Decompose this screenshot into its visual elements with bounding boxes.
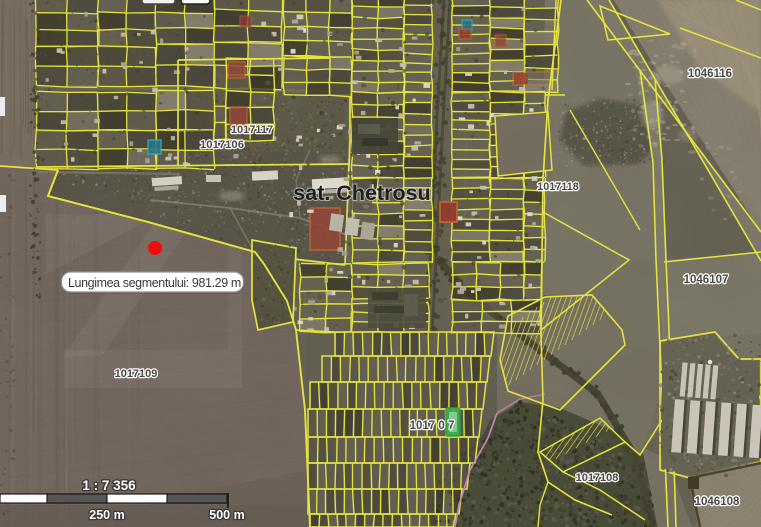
- svg-text:Lungimea segmentului: 981.29 m: Lungimea segmentului: 981.29 m: [68, 276, 241, 290]
- svg-text:1017118: 1017118: [537, 181, 578, 193]
- svg-text:1017108: 1017108: [576, 472, 619, 484]
- svg-text:1 : 7 356: 1 : 7 356: [82, 478, 136, 493]
- svg-text:1046107: 1046107: [684, 274, 729, 286]
- svg-text:500 m: 500 m: [209, 508, 244, 522]
- svg-text:1017109: 1017109: [115, 368, 158, 380]
- svg-text:250 m: 250 m: [89, 508, 124, 522]
- svg-text:1046116: 1046116: [688, 68, 732, 80]
- svg-text:1017117: 1017117: [231, 124, 273, 136]
- svg-text:1017106: 1017106: [200, 139, 244, 151]
- svg-text:1046108: 1046108: [695, 496, 740, 508]
- svg-text:1017 0 7: 1017 0 7: [410, 420, 455, 432]
- svg-text:sat. Chetrosu: sat. Chetrosu: [293, 181, 430, 205]
